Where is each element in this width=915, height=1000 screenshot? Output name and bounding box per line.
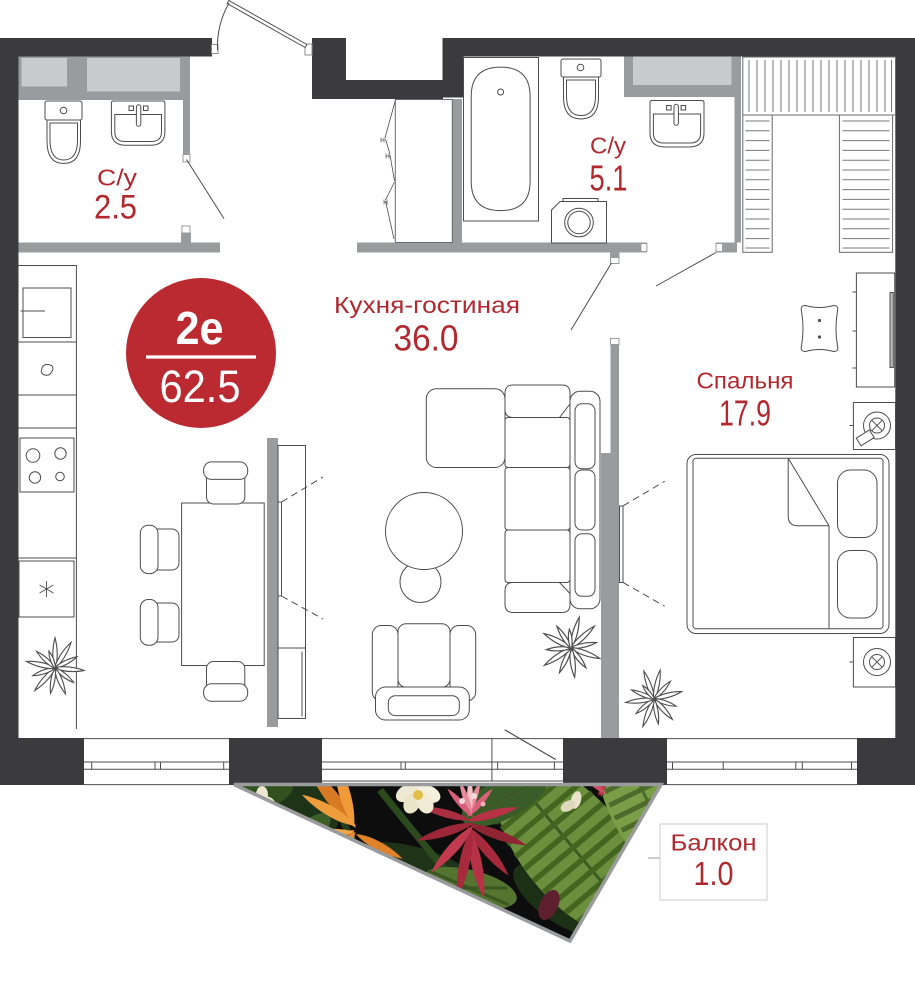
svg-text:1.0: 1.0	[694, 855, 734, 892]
svg-text:Балкон: Балкон	[671, 830, 757, 856]
svg-text:2.5: 2.5	[94, 189, 137, 227]
svg-text:Спальня: Спальня	[697, 368, 794, 394]
svg-text:36.0: 36.0	[394, 318, 459, 359]
svg-text:62.5: 62.5	[160, 361, 241, 412]
svg-text:17.9: 17.9	[719, 393, 771, 434]
svg-text:Кухня-гостиная: Кухня-гостиная	[334, 292, 520, 318]
svg-text:2е: 2е	[176, 302, 224, 354]
svg-text:С/у: С/у	[590, 133, 627, 159]
svg-text:5.1: 5.1	[590, 158, 628, 199]
svg-text:С/у: С/у	[97, 165, 138, 191]
